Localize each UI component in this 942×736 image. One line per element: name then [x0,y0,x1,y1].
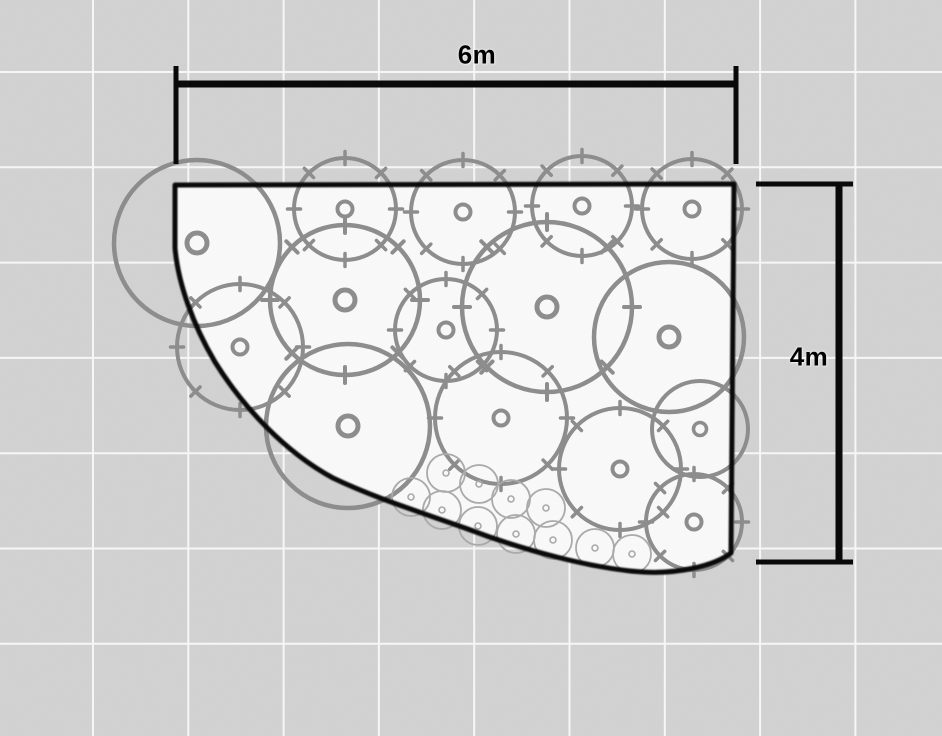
grain-overlay [0,0,942,736]
plan-canvas-svg [0,0,942,736]
garden-bed-plan: 6m 4m [0,0,942,736]
